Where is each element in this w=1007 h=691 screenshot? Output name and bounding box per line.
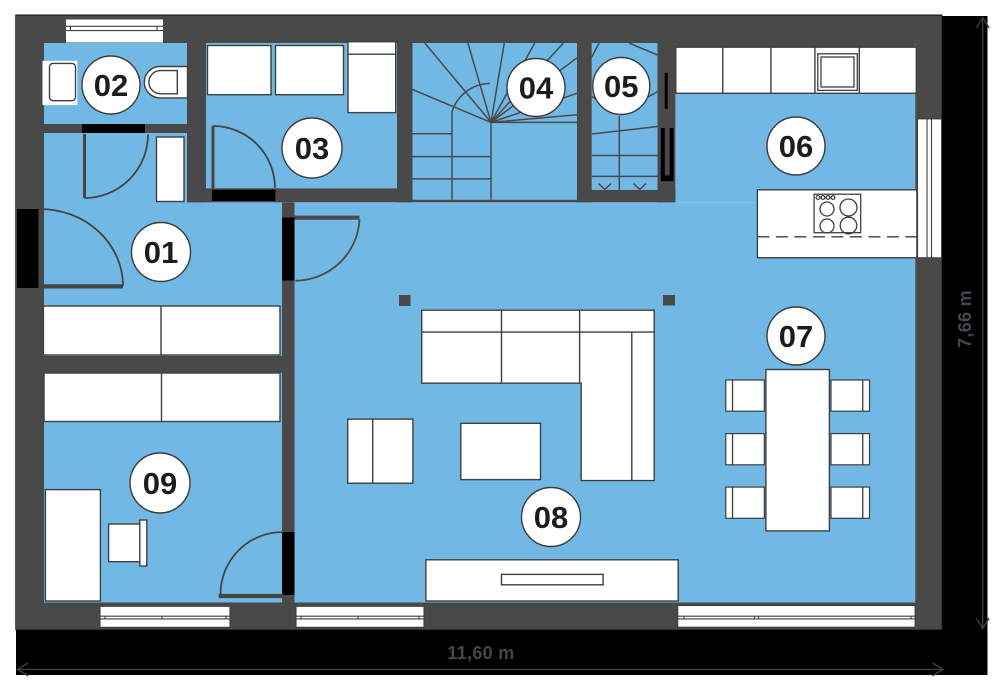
svg-text:03: 03 bbox=[295, 131, 329, 166]
svg-text:08: 08 bbox=[534, 500, 568, 535]
svg-text:02: 02 bbox=[94, 68, 128, 103]
svg-text:06: 06 bbox=[779, 129, 813, 164]
svg-text:11,60 m: 11,60 m bbox=[447, 643, 514, 663]
svg-text:05: 05 bbox=[604, 69, 638, 104]
svg-text:01: 01 bbox=[144, 235, 178, 270]
svg-text:04: 04 bbox=[519, 71, 554, 106]
svg-text:07: 07 bbox=[779, 319, 813, 354]
svg-text:7,66 m: 7,66 m bbox=[955, 290, 975, 348]
svg-text:09: 09 bbox=[143, 466, 177, 501]
